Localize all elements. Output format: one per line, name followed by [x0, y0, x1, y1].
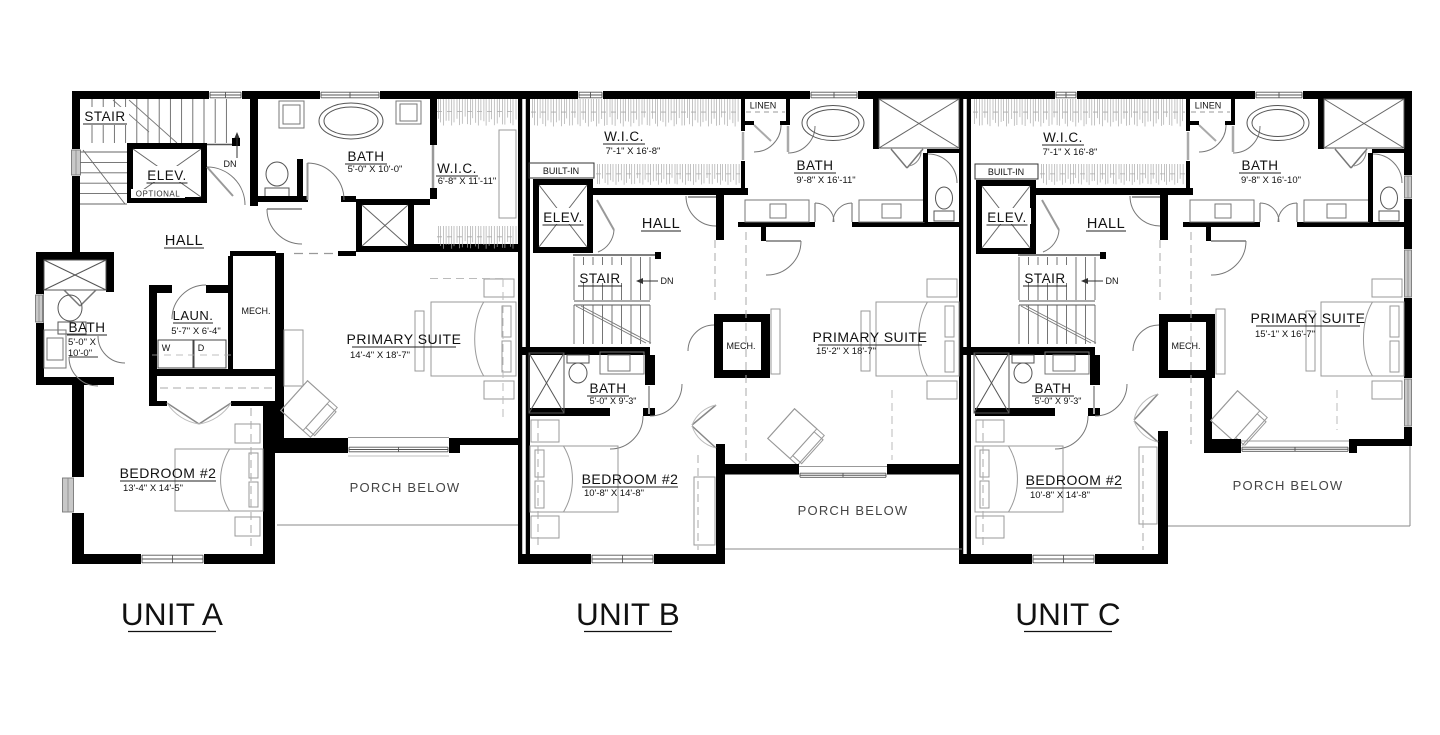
svg-text:D: D: [198, 343, 205, 353]
svg-text:5'-7" X 6'-4": 5'-7" X 6'-4": [171, 326, 220, 337]
svg-text:ELEV.: ELEV.: [147, 168, 187, 183]
svg-text:10'-8" X 14'-8": 10'-8" X 14'-8": [584, 488, 644, 499]
svg-text:BATH: BATH: [1241, 158, 1278, 173]
svg-text:BATH: BATH: [589, 381, 626, 396]
svg-text:PRIMARY SUITE: PRIMARY SUITE: [813, 329, 928, 345]
svg-text:W.I.C.: W.I.C.: [1043, 130, 1083, 145]
svg-text:15'-2" X 18'-7": 15'-2" X 18'-7": [816, 346, 876, 357]
svg-text:5'-0" X: 5'-0" X: [68, 337, 97, 348]
svg-text:W: W: [162, 343, 171, 353]
svg-text:7'-1" X 16'-8": 7'-1" X 16'-8": [1043, 147, 1098, 158]
svg-text:HALL: HALL: [642, 216, 680, 232]
svg-text:STAIR: STAIR: [579, 271, 620, 286]
svg-text:LINEN: LINEN: [1195, 101, 1222, 111]
svg-text:13'-4" X 14'-5": 13'-4" X 14'-5": [123, 483, 183, 494]
svg-text:ELEV.: ELEV.: [987, 210, 1027, 225]
svg-text:BUILT-IN: BUILT-IN: [543, 166, 579, 176]
svg-text:5'-0" X 9'-3": 5'-0" X 9'-3": [1035, 396, 1082, 406]
svg-text:14'-4" X 18'-7": 14'-4" X 18'-7": [350, 350, 410, 361]
svg-text:DN: DN: [1106, 276, 1119, 286]
svg-text:PORCH BELOW: PORCH BELOW: [350, 480, 461, 495]
svg-text:STAIR: STAIR: [1024, 271, 1065, 286]
svg-text:MECH.: MECH.: [727, 341, 756, 351]
svg-text:PRIMARY SUITE: PRIMARY SUITE: [347, 331, 462, 347]
svg-text:MECH.: MECH.: [1172, 341, 1201, 351]
svg-text:UNIT B: UNIT B: [576, 596, 680, 632]
svg-text:W.I.C.: W.I.C.: [604, 129, 644, 144]
svg-text:10'-8" X 14'-8": 10'-8" X 14'-8": [1030, 490, 1090, 501]
svg-text:BEDROOM #2: BEDROOM #2: [120, 465, 217, 481]
svg-text:PORCH BELOW: PORCH BELOW: [1233, 478, 1344, 493]
svg-text:BEDROOM #2: BEDROOM #2: [582, 471, 679, 487]
svg-text:6'-8" X 11'-11": 6'-8" X 11'-11": [438, 176, 497, 187]
svg-text:9'-8" X 16'-11": 9'-8" X 16'-11": [796, 175, 855, 186]
svg-text:UNIT A: UNIT A: [121, 596, 223, 632]
svg-text:DN: DN: [224, 159, 237, 169]
svg-text:STAIR: STAIR: [84, 109, 125, 124]
svg-text:BATH: BATH: [1034, 381, 1071, 396]
svg-text:OPTIONAL: OPTIONAL: [136, 190, 181, 199]
svg-text:ELEV.: ELEV.: [543, 210, 583, 225]
svg-text:W.I.C.: W.I.C.: [437, 161, 477, 176]
svg-text:BATH: BATH: [68, 320, 105, 335]
svg-text:7'-1" X 16'-8": 7'-1" X 16'-8": [606, 146, 661, 157]
svg-text:PORCH BELOW: PORCH BELOW: [798, 503, 909, 518]
svg-text:BATH: BATH: [347, 149, 384, 164]
svg-text:9'-8" X 16'-10": 9'-8" X 16'-10": [1241, 175, 1301, 186]
svg-text:BUILT-IN: BUILT-IN: [988, 167, 1024, 177]
svg-text:BATH: BATH: [796, 158, 833, 173]
svg-text:UNIT C: UNIT C: [1015, 596, 1121, 632]
svg-text:15'-1" X 16'-7": 15'-1" X 16'-7": [1255, 329, 1315, 340]
svg-text:LINEN: LINEN: [750, 101, 777, 111]
svg-text:PRIMARY SUITE: PRIMARY SUITE: [1251, 310, 1366, 326]
svg-text:DN: DN: [661, 276, 674, 286]
svg-text:BEDROOM #2: BEDROOM #2: [1026, 472, 1123, 488]
svg-text:HALL: HALL: [1087, 216, 1125, 232]
svg-text:HALL: HALL: [165, 233, 203, 249]
svg-text:MECH.: MECH.: [242, 306, 271, 316]
svg-text:5'-0" X 10'-0": 5'-0" X 10'-0": [348, 164, 403, 175]
svg-text:LAUN.: LAUN.: [173, 308, 214, 323]
svg-text:5'-0" X 9'-3": 5'-0" X 9'-3": [590, 396, 637, 406]
